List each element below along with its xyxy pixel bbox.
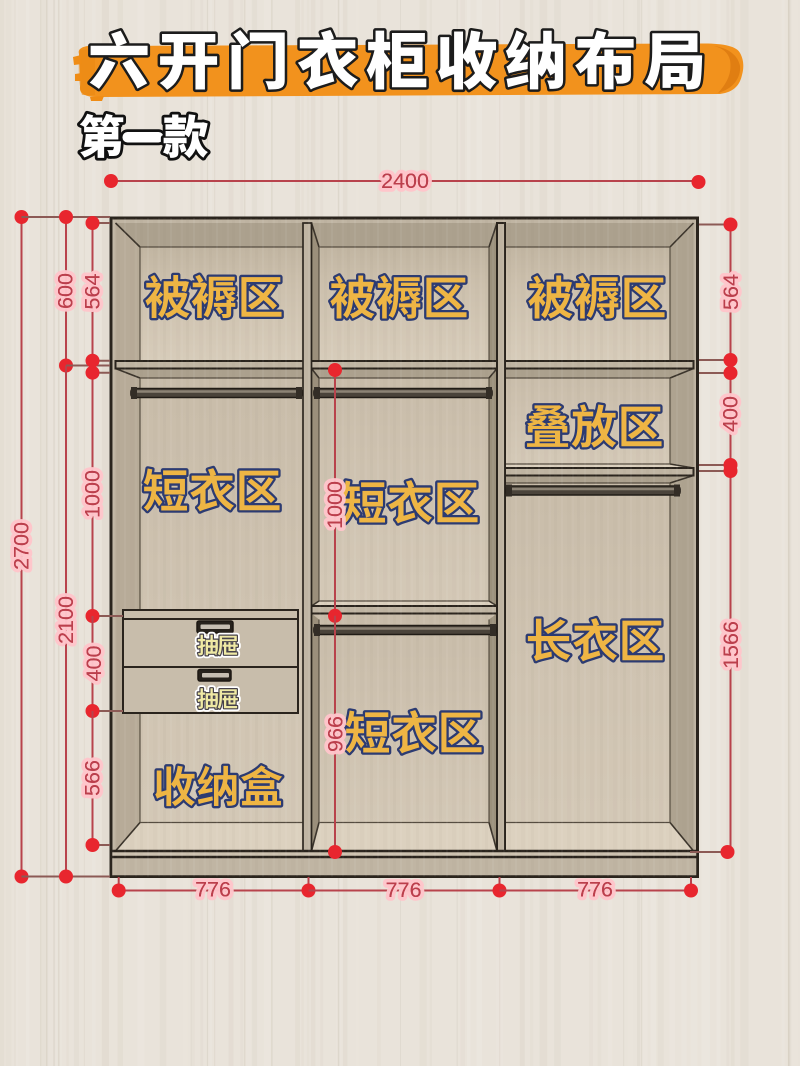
svg-text:776: 776 [195, 878, 231, 902]
svg-text:1000: 1000 [81, 470, 105, 518]
svg-text:400: 400 [82, 646, 106, 682]
svg-text:600: 600 [54, 273, 78, 309]
svg-text:2100: 2100 [54, 596, 78, 644]
svg-text:400: 400 [719, 396, 743, 432]
svg-text:566: 566 [81, 760, 105, 796]
svg-text:2700: 2700 [10, 522, 34, 570]
svg-text:1000: 1000 [323, 481, 347, 529]
svg-text:2400: 2400 [381, 169, 429, 193]
svg-text:564: 564 [719, 274, 743, 310]
svg-text:966: 966 [324, 716, 348, 752]
svg-text:776: 776 [386, 878, 422, 902]
svg-text:1566: 1566 [719, 621, 743, 669]
svg-text:776: 776 [577, 878, 613, 902]
svg-text:564: 564 [81, 274, 105, 310]
